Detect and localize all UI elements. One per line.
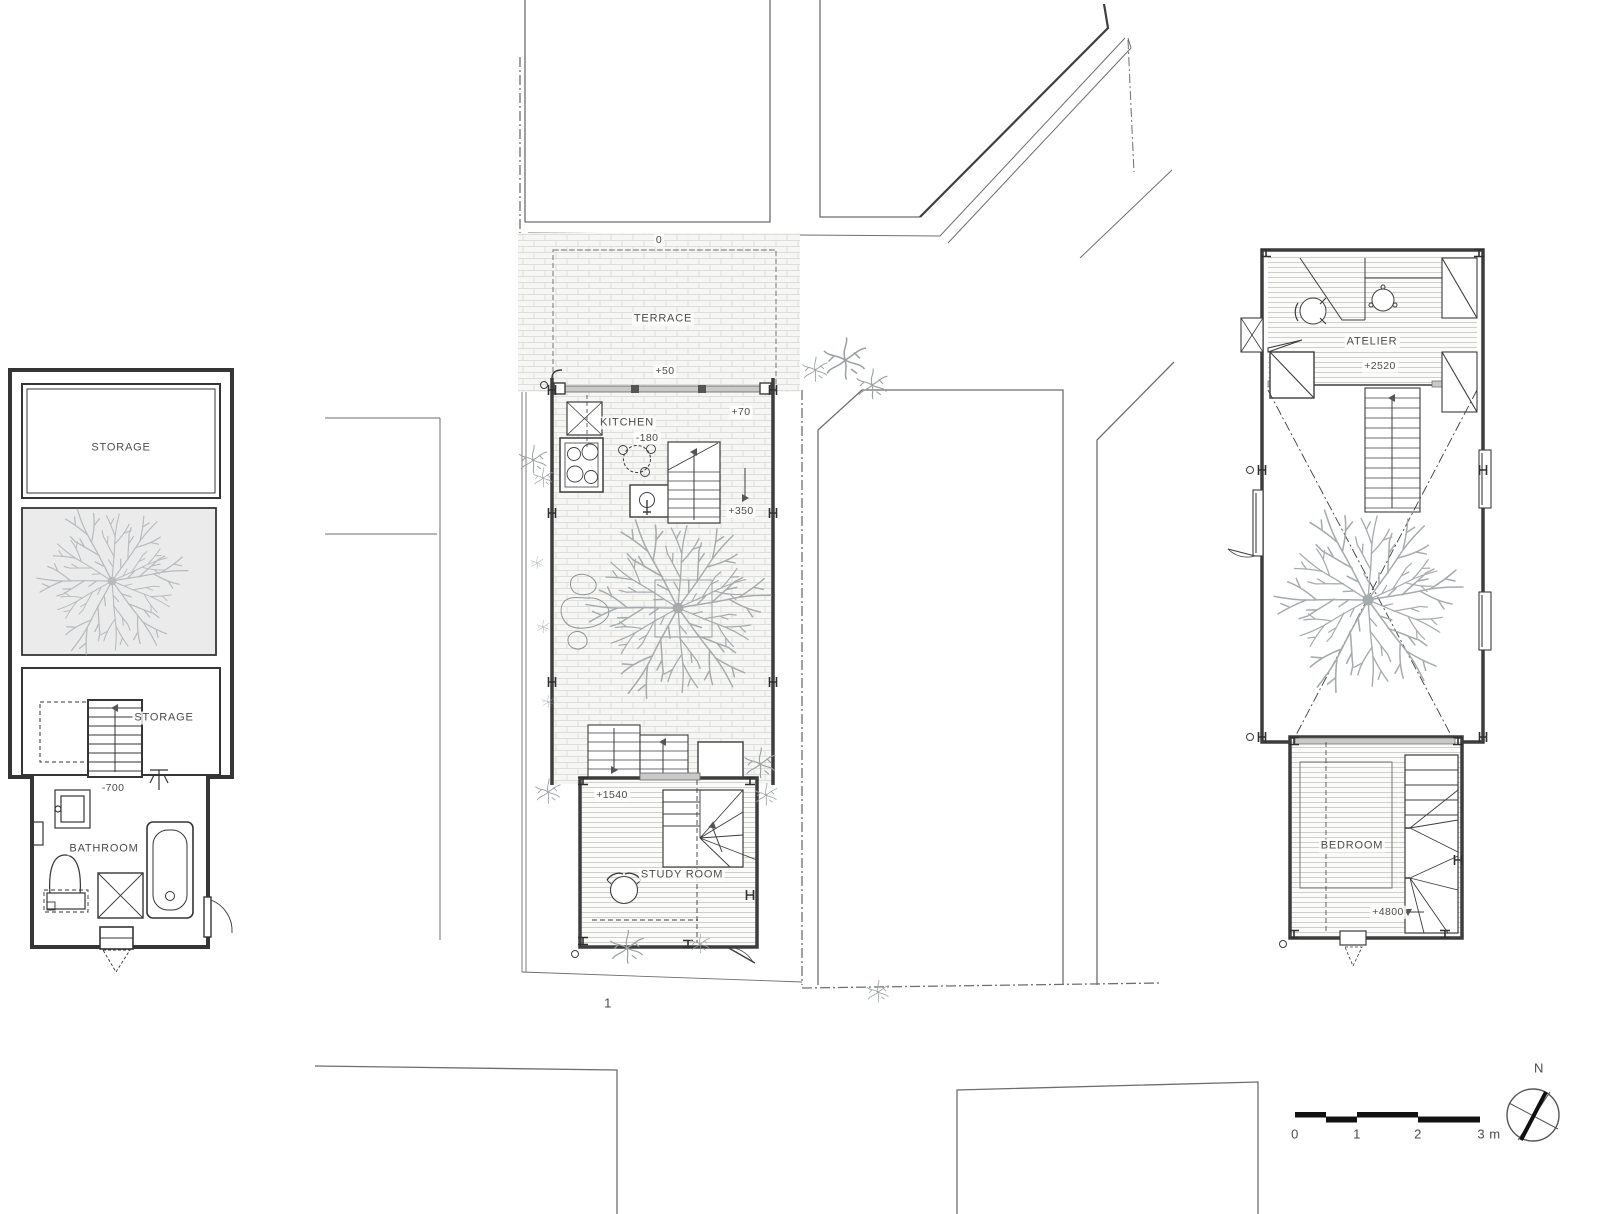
sink-icon — [55, 790, 90, 828]
scale-tick-2: 2 — [1412, 1127, 1424, 1142]
scale-bar — [1295, 1112, 1480, 1123]
label-terrace: TERRACE — [632, 313, 694, 326]
neighbor-building-south-west — [315, 1066, 617, 1214]
neighbor-building-north-east — [820, 0, 1108, 217]
stove-icon — [560, 438, 603, 492]
property-line-east — [802, 390, 1160, 988]
window-east-2 — [1479, 592, 1491, 650]
neighbor-building-west — [325, 418, 440, 940]
label-study-room: STUDY ROOM — [639, 869, 725, 882]
label-storage-upper: STORAGE — [89, 442, 152, 455]
stair-to-atelier — [668, 442, 720, 523]
basement-entry-hatch — [100, 927, 133, 972]
label-level-plus2520: +2520 — [1362, 360, 1398, 373]
label-level-plus4800: +4800 — [1370, 906, 1406, 919]
bathtub-icon — [147, 822, 193, 918]
basement-plan — [10, 370, 232, 972]
neighbor-building-east — [818, 362, 1174, 985]
neighbor-building-north-west — [525, 0, 770, 222]
basement-outer-wall — [10, 370, 232, 947]
north-arrow — [1507, 1089, 1559, 1141]
label-level-plus1540: +1540 — [594, 789, 630, 802]
scale-tick-3m: 3 m — [1475, 1127, 1502, 1142]
scale-tick-0: 0 — [1289, 1127, 1301, 1142]
drawing-sheet: STORAGE STORAGE -700 BATHROOM 0 TERRACE … — [0, 0, 1600, 1214]
window-door-west — [1228, 490, 1263, 557]
landing-overhang — [698, 742, 743, 780]
label-atelier: ATELIER — [1345, 336, 1400, 349]
label-level-minus180: -180 — [634, 432, 661, 445]
study-door — [727, 947, 755, 963]
upper-stair — [1365, 388, 1420, 512]
window-east-1 — [1479, 450, 1491, 508]
label-level-minus700: -700 — [100, 782, 127, 795]
bedroom-winder-stair — [1405, 755, 1458, 933]
upper-plan — [1228, 250, 1491, 967]
court-sink — [630, 485, 670, 517]
kitchen-counter — [567, 402, 602, 435]
label-level-plus50: +50 — [653, 365, 676, 378]
balcony-hatch-box — [1241, 318, 1263, 352]
label-kitchen: KITCHEN — [598, 417, 656, 430]
label-level-plus350: +350 — [726, 505, 755, 518]
ground-plan — [518, 233, 889, 1002]
site-context — [315, 0, 1258, 1214]
label-bedroom: BEDROOM — [1319, 840, 1385, 853]
label-road-1: 1 — [602, 996, 614, 1011]
label-level-0: 0 — [654, 234, 664, 247]
bathroom-door — [204, 897, 232, 937]
road-edges — [528, 38, 1172, 258]
bedroom-entry-hatch — [1340, 931, 1366, 966]
label-bathroom: BATHROOM — [67, 843, 140, 856]
neighbor-building-south-east — [957, 1082, 1258, 1214]
basement-tree-box — [22, 504, 216, 660]
scale-tick-1: 1 — [1351, 1127, 1363, 1142]
label-storage-lower: STORAGE — [132, 712, 195, 725]
study-winder-stair — [663, 790, 757, 867]
north-label: N — [1532, 1061, 1546, 1076]
shower-icon — [98, 873, 143, 918]
label-level-plus70: +70 — [729, 406, 752, 419]
floorplan-drawing — [0, 0, 1600, 1214]
